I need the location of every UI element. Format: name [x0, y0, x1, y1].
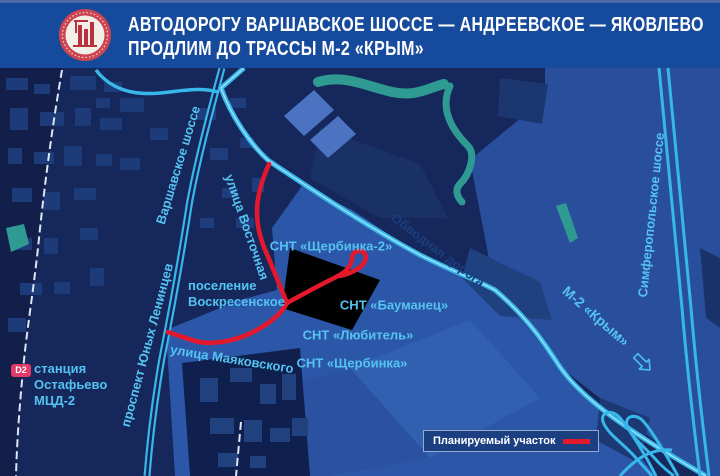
construction-emblem-icon	[58, 8, 112, 62]
page-title: АВТОДОРОГУ ВАРШАВСКОЕ ШОССЕ — АНДРЕЕВСКО…	[128, 13, 704, 61]
station-label-line3: МЦД-2	[34, 393, 107, 409]
legend-box: Планируемый участок	[423, 430, 599, 452]
station-label-line1: станция	[34, 361, 107, 377]
snt-label-baumanets: СНТ «Бауманец»	[340, 298, 448, 313]
page-title-line2: ПРОДЛИМ ДО ТРАССЫ М-2 «КРЫМ»	[128, 37, 704, 61]
settlement-label-line2: Воскресенское	[188, 294, 285, 310]
page-title-line1: АВТОДОРОГУ ВАРШАВСКОЕ ШОССЕ — АНДРЕЕВСКО…	[128, 13, 704, 37]
legend-planned-route-swatch	[563, 439, 590, 444]
mcd-d2-badge: D2	[11, 364, 31, 377]
snt-label-lyubitel: СНТ «Любитель»	[303, 328, 414, 343]
dark-block	[498, 78, 548, 124]
settlement-label-voskresenskoe: поселение Воскресенское	[188, 278, 285, 310]
legend-label: Планируемый участок	[433, 435, 556, 447]
infographic: АВТОДОРОГУ ВАРШАВСКОЕ ШОССЕ — АНДРЕЕВСКО…	[0, 0, 720, 476]
station-label-ostafyevo: станция Остафьево МЦД-2	[34, 361, 107, 409]
header-banner: АВТОДОРОГУ ВАРШАВСКОЕ ШОССЕ — АНДРЕЕВСКО…	[0, 3, 720, 68]
snt-label-shcherbinka2: СНТ «Щербинка-2»	[270, 239, 392, 254]
settlement-label-line1: поселение	[188, 278, 285, 294]
map-canvas: Варшавское шоссе проспект Юных Ленинцев …	[0, 68, 720, 476]
station-label-line2: Остафьево	[34, 377, 107, 393]
map-graphics	[0, 68, 720, 476]
snt-label-shcherbinka: СНТ «Щербинка»	[297, 356, 408, 371]
